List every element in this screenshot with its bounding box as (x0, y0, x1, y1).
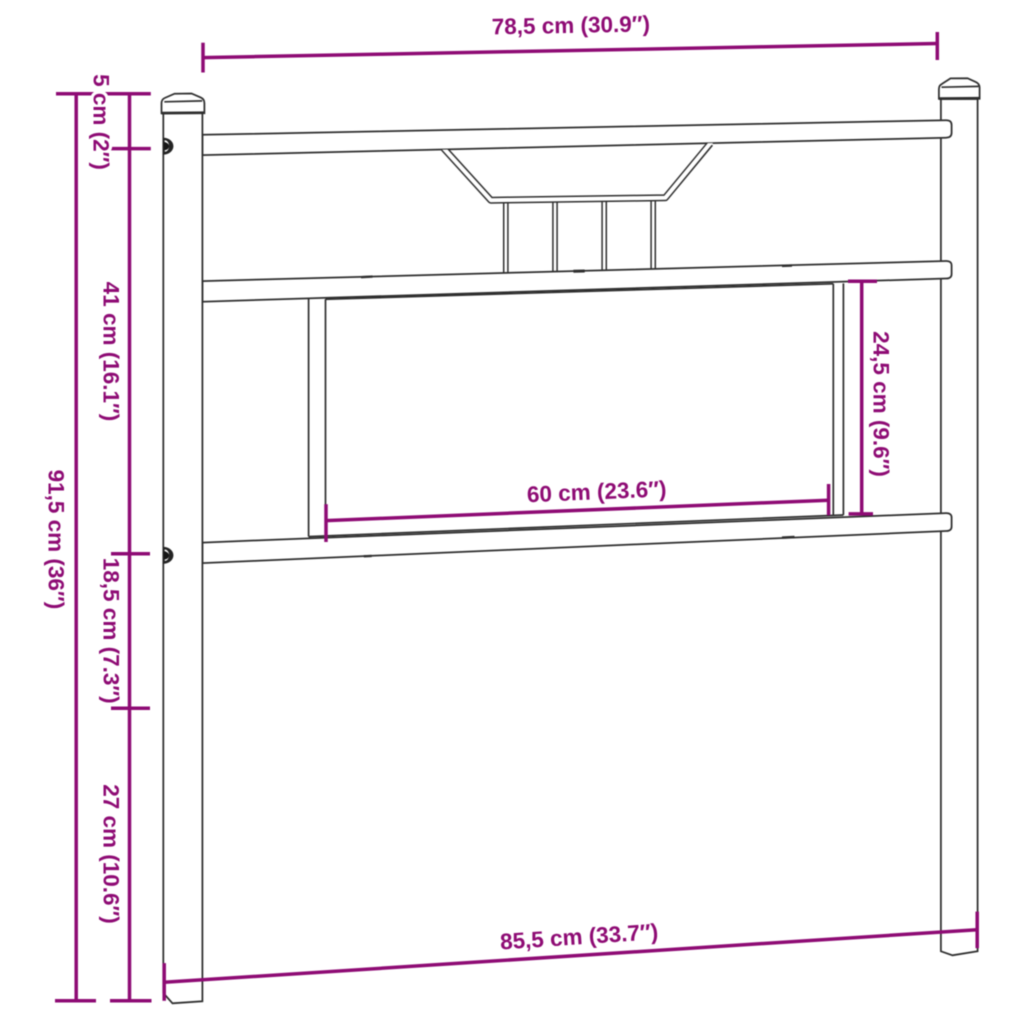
svg-text:41 cm (16.1″): 41 cm (16.1″) (98, 282, 123, 422)
svg-text:78,5 cm (30.9″): 78,5 cm (30.9″) (491, 11, 650, 39)
svg-text:5 cm (2″): 5 cm (2″) (89, 74, 114, 170)
svg-text:24,5 cm (9.6″): 24,5 cm (9.6″) (869, 331, 894, 477)
svg-text:91,5 cm (36″): 91,5 cm (36″) (43, 470, 68, 610)
svg-text:27 cm (10.6″): 27 cm (10.6″) (99, 784, 124, 924)
svg-text:18,5 cm (7.3″): 18,5 cm (7.3″) (99, 558, 124, 704)
